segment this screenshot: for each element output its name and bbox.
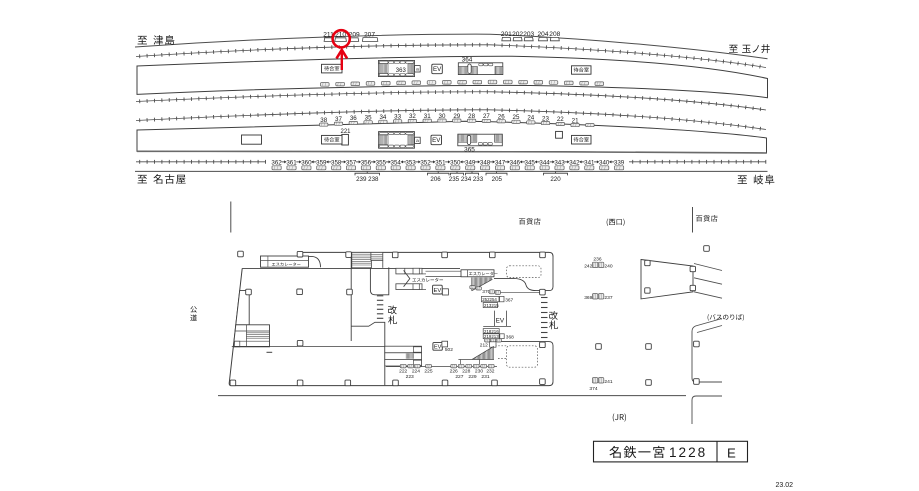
svg-text:359: 359 [316,159,327,166]
svg-text:241: 241 [604,379,612,385]
svg-text:348: 348 [480,159,491,166]
svg-text:358: 358 [331,159,342,166]
svg-text:350: 350 [450,159,461,166]
svg-text:367: 367 [505,297,513,303]
svg-text:344: 344 [539,159,550,166]
svg-text:235 234 233: 235 234 233 [449,176,484,183]
svg-text:220: 220 [550,176,561,183]
svg-text:223: 223 [406,374,414,380]
svg-text:240: 240 [604,264,612,270]
svg-text:365: 365 [464,147,475,154]
svg-text:EV: EV [433,66,442,73]
svg-text:205: 205 [492,176,503,183]
svg-text:227: 227 [455,374,463,380]
svg-text:1228: 1228 [669,445,707,460]
svg-text:363: 363 [396,68,407,74]
svg-text:345: 345 [525,159,536,166]
svg-text:242: 242 [584,264,592,270]
svg-text:352: 352 [420,159,431,166]
svg-text:368: 368 [506,335,514,341]
svg-text:226: 226 [450,369,458,375]
svg-text:EV: EV [434,345,442,351]
svg-text:237: 237 [604,295,612,301]
svg-text:369: 369 [584,295,592,301]
svg-text:228: 228 [462,369,470,375]
svg-text:222: 222 [399,369,407,375]
svg-text:343: 343 [554,159,565,166]
svg-text:232: 232 [486,369,494,375]
svg-text:EV: EV [434,288,442,294]
svg-text:354: 354 [391,159,402,166]
svg-text:356: 356 [361,159,372,166]
svg-text:219213: 219213 [484,334,499,339]
svg-text:349: 349 [465,159,476,166]
svg-text:361: 361 [286,159,297,166]
svg-text:340: 340 [599,159,610,166]
svg-text:236: 236 [593,256,601,262]
svg-text:355: 355 [376,159,387,166]
svg-text:230: 230 [475,369,483,375]
svg-text:23.02: 23.02 [776,482,794,489]
svg-text:E: E [727,445,736,460]
svg-text:EV: EV [496,318,505,325]
svg-text:362: 362 [271,159,282,166]
svg-text:252254: 252254 [482,297,497,302]
svg-text:212: 212 [480,342,488,348]
svg-text:502: 502 [445,347,453,353]
svg-text:213215: 213215 [484,303,499,308]
svg-text:339: 339 [614,159,625,166]
svg-text:342: 342 [569,159,580,166]
svg-text:229: 229 [468,374,476,380]
svg-text:206: 206 [430,176,441,183]
svg-text:351: 351 [435,159,446,166]
svg-text:231: 231 [481,374,489,380]
svg-text:353: 353 [405,159,416,166]
svg-text:a: a [416,68,419,73]
svg-text:341: 341 [584,159,595,166]
svg-text:239 238: 239 238 [356,176,379,183]
svg-text:374: 374 [589,386,597,392]
svg-text:224: 224 [412,369,420,375]
svg-text:360: 360 [301,159,312,166]
svg-text:EV: EV [432,137,441,144]
svg-text:347: 347 [495,159,506,166]
svg-text:346: 346 [510,159,521,166]
svg-text:225: 225 [424,369,432,375]
svg-text:a: a [416,139,419,144]
svg-text:357: 357 [346,159,357,166]
